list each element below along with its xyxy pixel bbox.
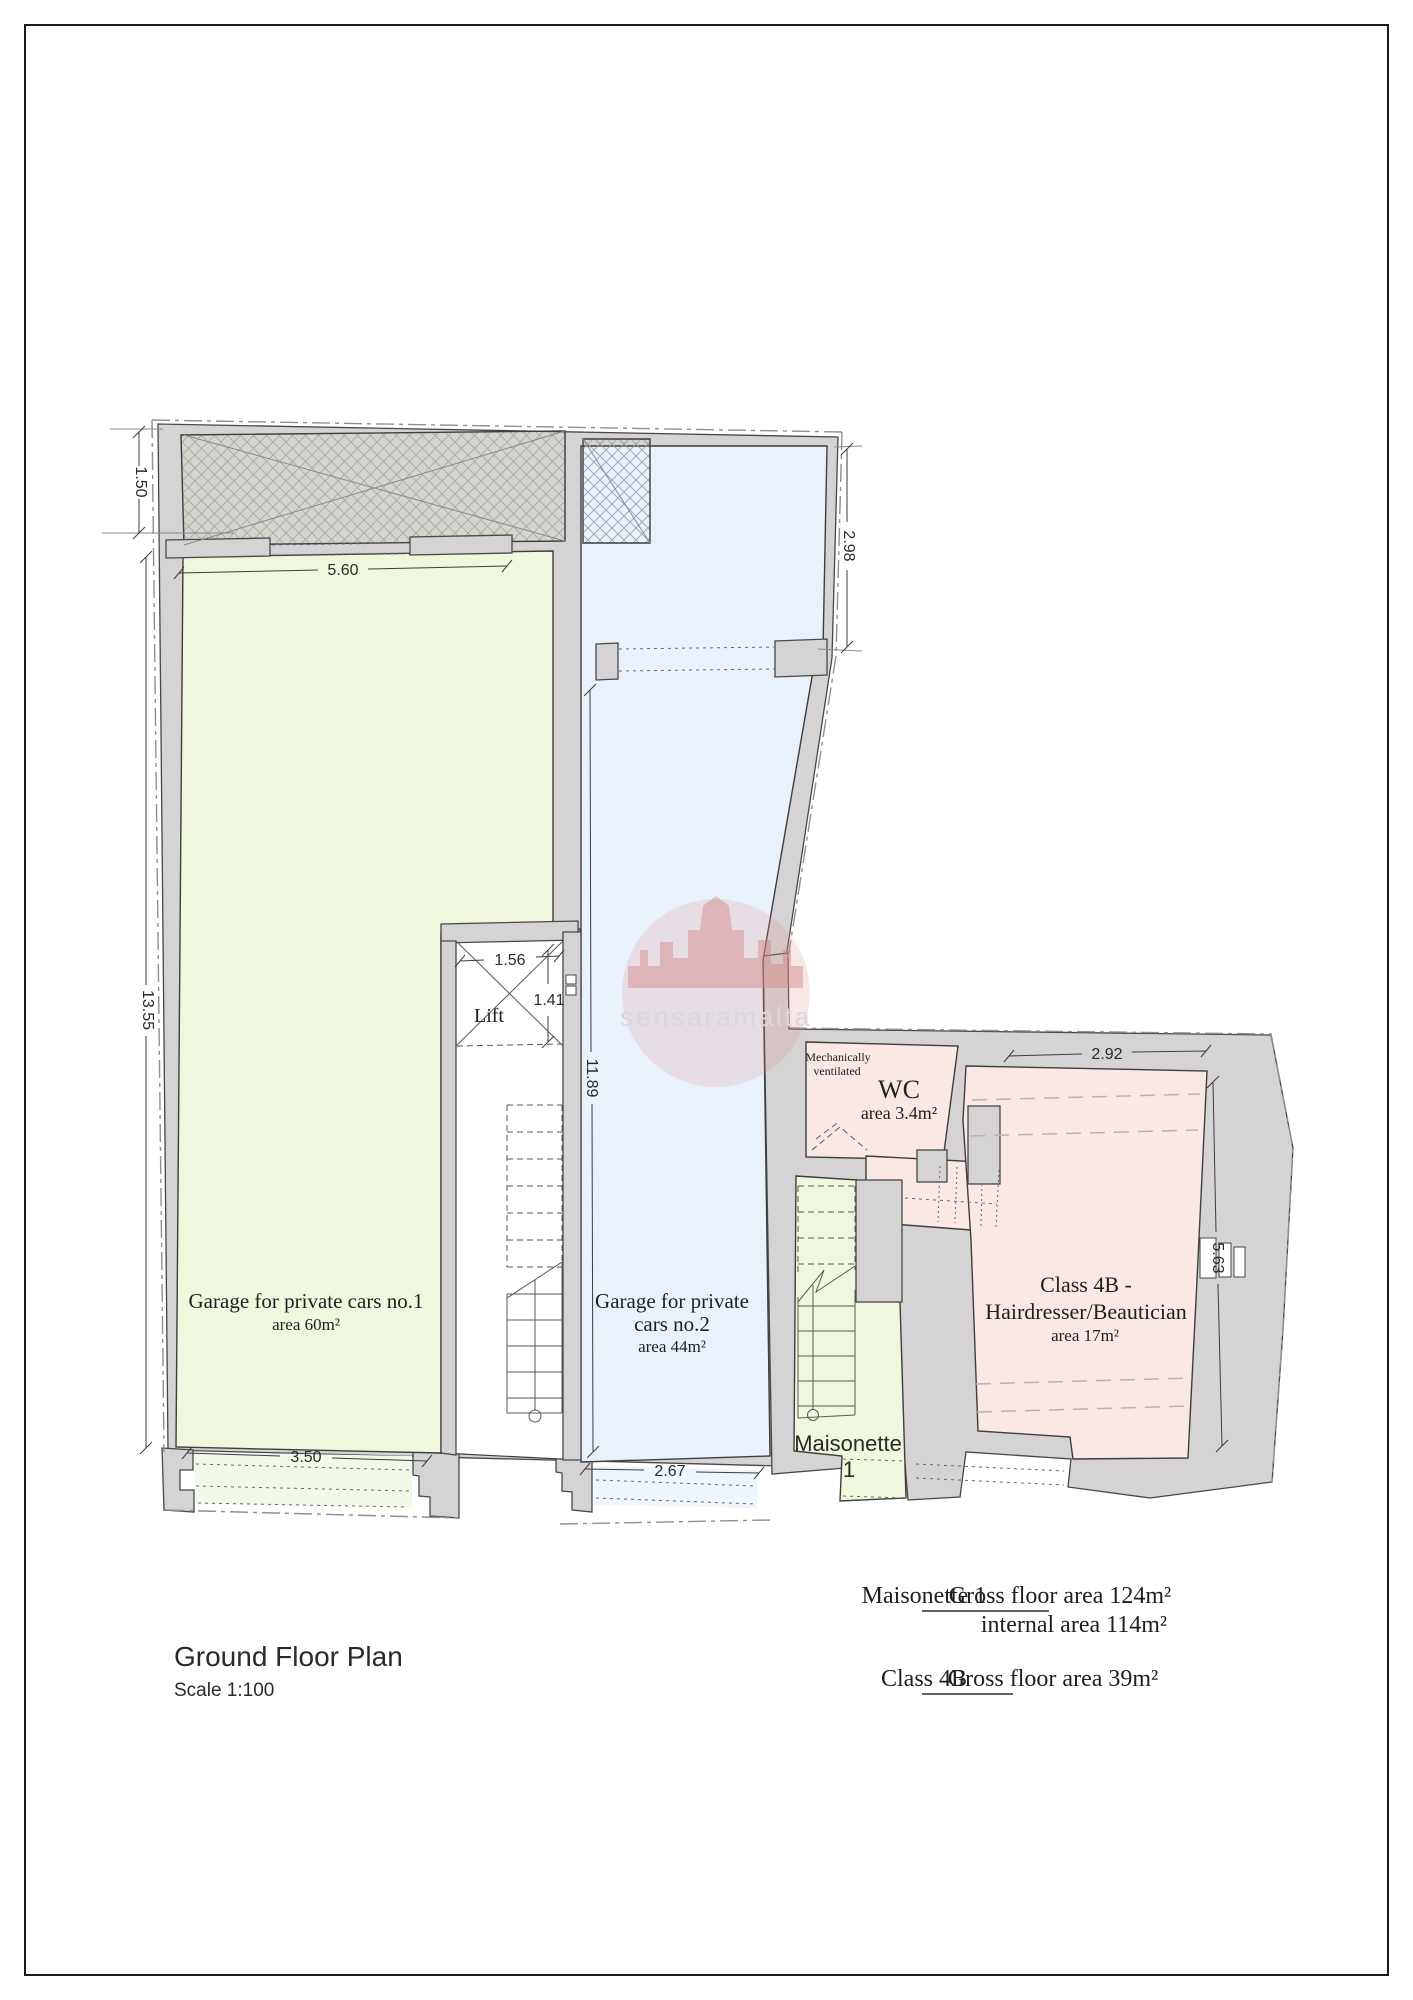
party-wall-step-mid <box>413 1452 459 1518</box>
wc-label: WC <box>878 1075 920 1104</box>
svg-text:5.60: 5.60 <box>327 562 358 579</box>
garage2-label-line1: Garage for private <box>595 1289 749 1313</box>
core-right-wall <box>563 932 581 1460</box>
party-wall-step-right <box>556 1456 592 1512</box>
garage2-mid-wall-right <box>775 639 827 677</box>
maisonette-label-line2: 1 <box>843 1457 855 1482</box>
stair-side-wall <box>856 1180 902 1302</box>
title-block: Ground Floor Plan Scale 1:100 <box>174 1641 403 1701</box>
class4b-left-wall-stub <box>968 1106 1000 1184</box>
wc-vent-label-line1: Mechanically <box>805 1050 870 1064</box>
floor-plan-canvas: sensaramalta 1.50 5.60 2.98 <box>0 0 1413 2000</box>
watermark-text: sensaramalta <box>620 1002 812 1032</box>
svg-text:1.56: 1.56 <box>494 952 525 969</box>
svg-text:13.55: 13.55 <box>139 990 156 1030</box>
legend-maisonette-value1: Gross floor area 124m² <box>949 1583 1171 1609</box>
garage2-area-label: area 44m² <box>638 1337 706 1356</box>
garage2-label-line2: cars no.2 <box>634 1312 710 1336</box>
class4b-label-line2: Hairdresser/Beautician <box>985 1299 1187 1324</box>
drawing-sheet: sensaramalta 1.50 5.60 2.98 <box>0 0 1413 2000</box>
drawing-scale: Scale 1:100 <box>174 1680 274 1701</box>
garage1-label: Garage for private cars no.1 <box>189 1289 424 1313</box>
legend: Maisonette 1 Gross floor area 124m² inte… <box>862 1583 1172 1694</box>
corridor-wall-stub <box>917 1150 947 1182</box>
svg-text:3.50: 3.50 <box>290 1449 321 1466</box>
legend-maisonette-value2: internal area 114m² <box>981 1612 1167 1638</box>
maisonette-label-line1: Maisonette <box>794 1431 902 1456</box>
garage2-mid-wall-left <box>596 643 618 680</box>
legend-class4b-value: Gross floor area 39m² <box>948 1666 1158 1692</box>
dimension-garage1-13-55: 13.55 <box>139 551 156 1454</box>
class4b-label-line1: Class 4B - <box>1040 1272 1132 1297</box>
svg-text:11.89: 11.89 <box>583 1059 600 1098</box>
lift-top-wall <box>441 921 578 943</box>
drawing-title: Ground Floor Plan <box>174 1641 403 1672</box>
svg-text:2.98: 2.98 <box>840 530 857 561</box>
svg-text:5.63: 5.63 <box>1209 1242 1226 1273</box>
svg-text:2.92: 2.92 <box>1091 1046 1122 1063</box>
svg-text:1.50: 1.50 <box>132 466 149 497</box>
svg-text:1.41: 1.41 <box>533 992 564 1009</box>
svg-text:2.67: 2.67 <box>654 1463 685 1480</box>
wc-area-label: area 3.4m² <box>861 1103 937 1123</box>
party-wall-step-left <box>162 1448 194 1512</box>
core-left-wall <box>441 941 456 1455</box>
garage1-area-label: area 60m² <box>272 1315 340 1334</box>
garage1-front-wall-left <box>166 538 270 558</box>
lift-label: Lift <box>474 1005 504 1027</box>
wc-vent-label-line2: ventilated <box>813 1064 860 1078</box>
garage1-front-wall-right <box>410 535 512 555</box>
class4b-area-label: area 17m² <box>1051 1326 1119 1345</box>
